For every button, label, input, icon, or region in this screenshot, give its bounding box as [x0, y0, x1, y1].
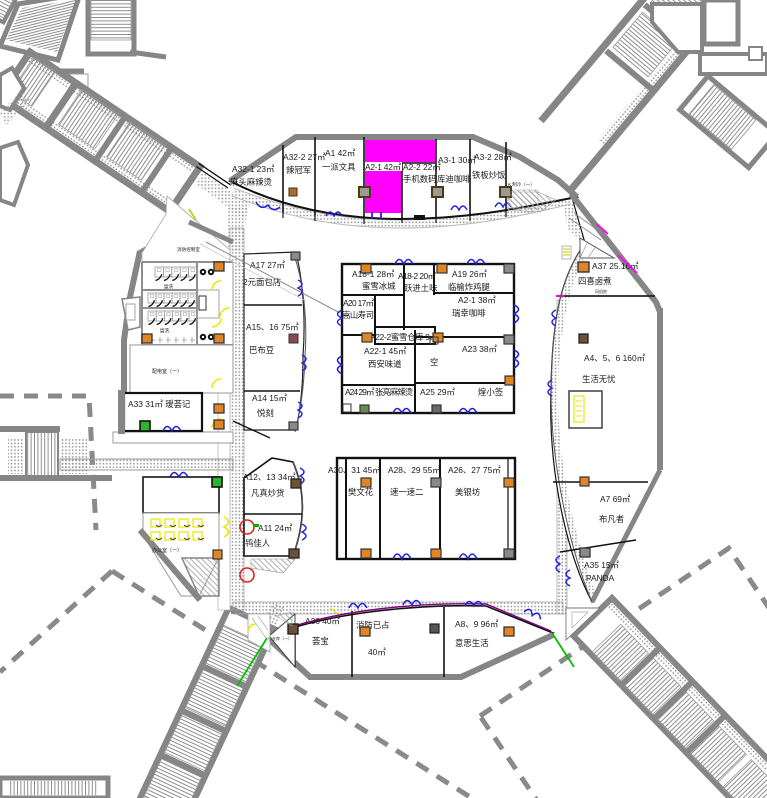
- svg-text:A19 26㎡: A19 26㎡: [452, 269, 488, 279]
- svg-text:瑞幸咖啡: 瑞幸咖啡: [452, 308, 486, 318]
- svg-text:办公室（一）: 办公室（一）: [152, 547, 182, 554]
- svg-text:K 制冷（一）: K 制冷（一）: [508, 181, 535, 188]
- svg-text:铁板炒饭: 铁板炒饭: [472, 170, 506, 180]
- svg-text:A35 15㎡: A35 15㎡: [584, 560, 620, 570]
- svg-text:盥洗: 盥洗: [160, 327, 170, 334]
- svg-text:小仓库（一）: 小仓库（一）: [268, 635, 292, 641]
- svg-text:意思生活: 意思生活: [455, 638, 489, 648]
- svg-text:A25 29㎡: A25 29㎡: [420, 387, 456, 397]
- svg-text:库迪咖啡: 库迪咖啡: [437, 174, 471, 184]
- svg-text:40㎡: 40㎡: [368, 647, 386, 657]
- svg-text:A22-1 45㎡: A22-1 45㎡: [364, 346, 407, 356]
- svg-text:A33 31㎡ 瑷荟记: A33 31㎡ 瑷荟记: [128, 399, 191, 409]
- svg-text:A2-2 22㎡: A2-2 22㎡: [403, 162, 441, 172]
- svg-text:空: 空: [430, 357, 438, 367]
- svg-text:跃进土味: 跃进土味: [404, 283, 438, 293]
- svg-text:美银坊: 美银坊: [455, 487, 481, 497]
- svg-text:A3-2 28㎡: A3-2 28㎡: [474, 152, 512, 162]
- svg-text:嵩山寿司: 嵩山寿司: [342, 310, 374, 320]
- svg-text:凡真炒货: 凡真炒货: [251, 488, 285, 498]
- svg-text:A15、16 75㎡: A15、16 75㎡: [246, 322, 299, 332]
- svg-text:悦刻: 悦刻: [257, 408, 274, 418]
- svg-text:荟宝: 荟宝: [312, 636, 329, 646]
- svg-text:盥洗: 盥洗: [164, 283, 174, 290]
- svg-text:布凡者: 布凡者: [599, 514, 624, 524]
- svg-text:A3-1 30㎡: A3-1 30㎡: [438, 155, 476, 165]
- svg-text:A7 69㎡: A7 69㎡: [600, 494, 631, 504]
- svg-text:A24 29㎡ 张亮麻辣烫: A24 29㎡ 张亮麻辣烫: [345, 387, 414, 397]
- svg-text:辣冠军: 辣冠军: [286, 165, 311, 175]
- svg-text:A30、31 45㎡: A30、31 45㎡: [328, 465, 381, 475]
- svg-text:A1 42㎡: A1 42㎡: [325, 148, 356, 158]
- svg-text:A4、5、6 160㎡: A4、5、6 160㎡: [584, 353, 646, 363]
- svg-text:巴布豆: 巴布豆: [249, 345, 274, 355]
- svg-text:A32-2 27㎡: A32-2 27㎡: [283, 152, 326, 162]
- svg-text:A14 15㎡: A14 15㎡: [252, 393, 288, 403]
- svg-text:A32-1 23㎡: A32-1 23㎡: [232, 164, 275, 174]
- svg-text:煌小签: 煌小签: [478, 387, 504, 397]
- svg-text:风机房: 风机房: [595, 288, 607, 294]
- svg-text:A23 38㎡: A23 38㎡: [462, 344, 498, 354]
- svg-text:消防控制室: 消防控制室: [177, 246, 200, 253]
- svg-text:A18-2 20㎡: A18-2 20㎡: [398, 271, 437, 281]
- svg-text:西安味道: 西安味道: [368, 359, 402, 369]
- svg-text:鸨佳人: 鸨佳人: [245, 538, 271, 548]
- svg-text:一派文具: 一派文具: [322, 162, 356, 172]
- svg-text:四喜卤煮: 四喜卤煮: [578, 276, 612, 286]
- svg-text:麻头麻辣烫: 麻头麻辣烫: [230, 177, 272, 187]
- svg-text:A2-1 38㎡: A2-1 38㎡: [458, 295, 496, 305]
- svg-text:A12、13 34㎡: A12、13 34㎡: [243, 472, 296, 482]
- svg-text:手机数码: 手机数码: [403, 174, 437, 184]
- svg-text:A18-1 28㎡: A18-1 28㎡: [352, 269, 395, 279]
- svg-text:樊文花: 樊文花: [348, 487, 374, 497]
- svg-text:A26、27 75㎡: A26、27 75㎡: [448, 465, 501, 475]
- svg-text:配电室（一）: 配电室（一）: [152, 368, 182, 375]
- svg-text:蜜雪冰城: 蜜雪冰城: [362, 281, 396, 291]
- svg-text:A11 24㎡: A11 24㎡: [258, 523, 293, 533]
- svg-text:临榆炸鸡腿: 临榆炸鸡腿: [448, 282, 490, 292]
- svg-text:A8、9 96㎡: A8、9 96㎡: [455, 619, 499, 629]
- svg-text:生活无忧: 生活无忧: [582, 374, 616, 384]
- svg-text:A20 17㎡: A20 17㎡: [343, 298, 375, 308]
- svg-text:PANDA: PANDA: [586, 573, 615, 583]
- svg-text:速一速二: 速一速二: [390, 487, 424, 497]
- svg-text:A22-2蜜雪仓库 9㎡: A22-2蜜雪仓库 9㎡: [370, 332, 439, 342]
- svg-text:A2-1 42㎡: A2-1 42㎡: [365, 162, 402, 172]
- svg-text:A28、29 55㎡: A28、29 55㎡: [388, 465, 441, 475]
